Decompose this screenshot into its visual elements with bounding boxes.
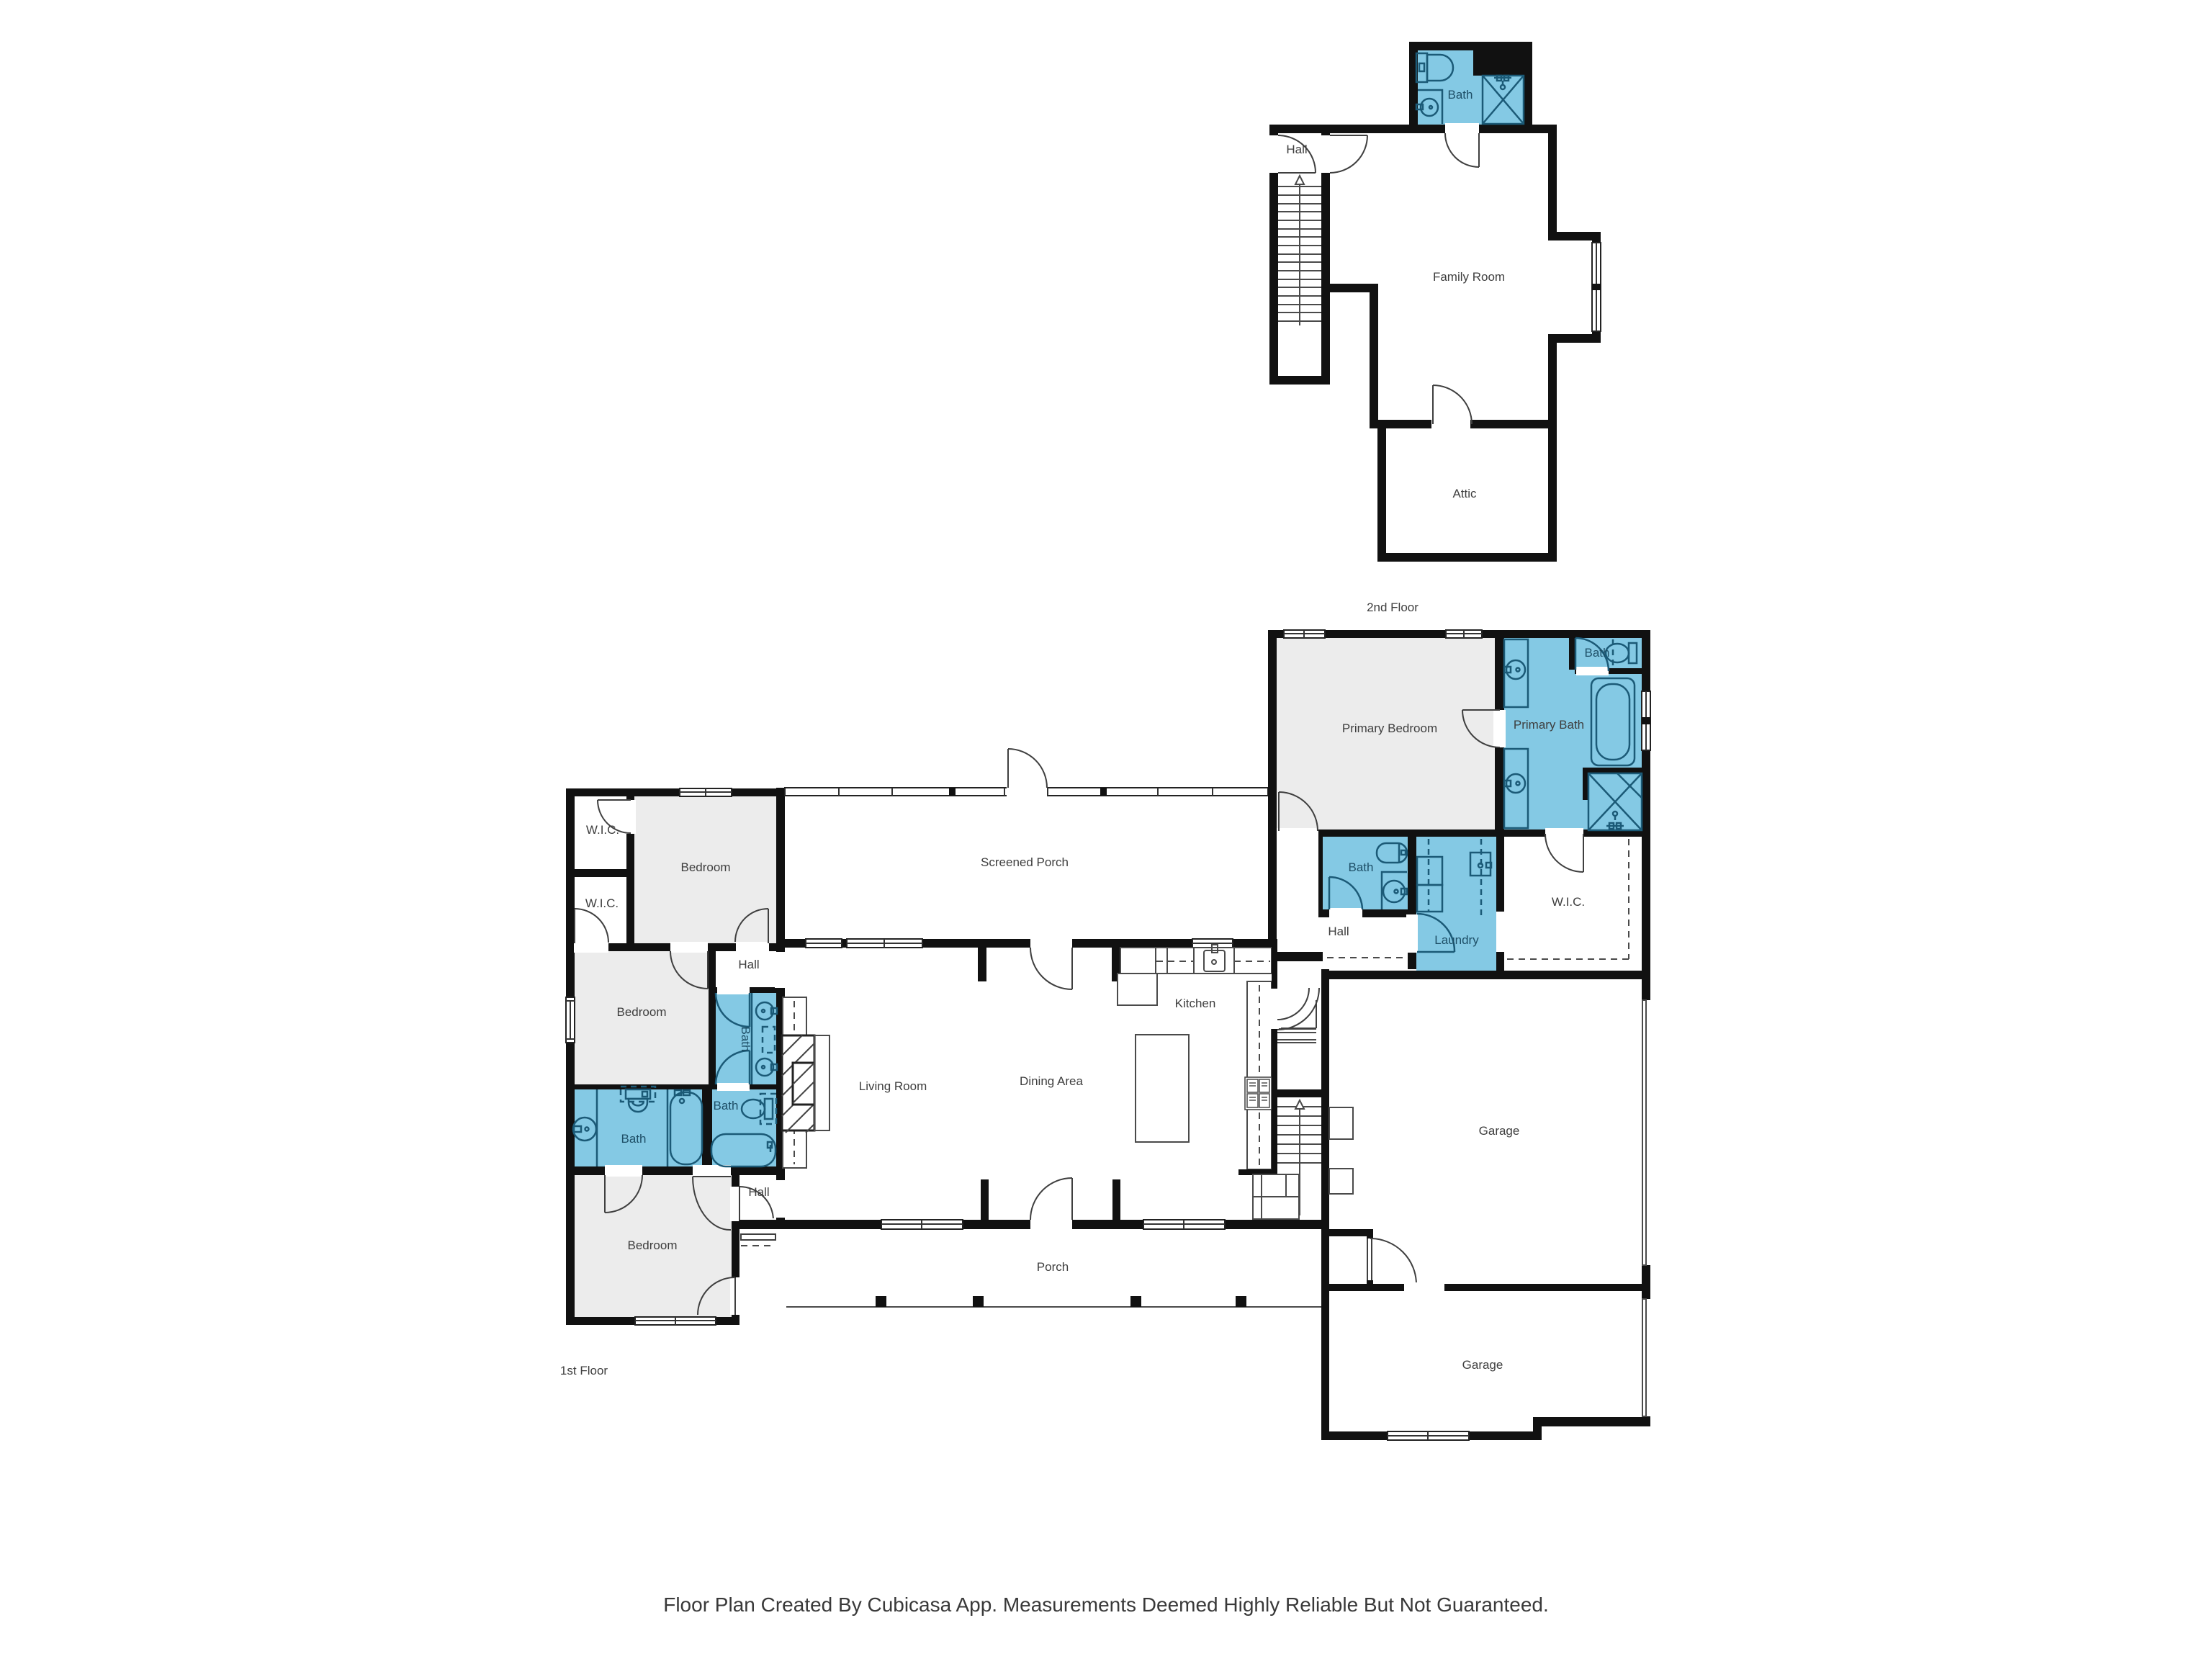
- svg-text:Primary Bedroom: Primary Bedroom: [1342, 721, 1437, 735]
- svg-text:Screened Porch: Screened Porch: [981, 855, 1069, 869]
- svg-text:Kitchen: Kitchen: [1175, 997, 1216, 1010]
- svg-text:Bath: Bath: [1349, 860, 1374, 874]
- svg-text:Dining Area: Dining Area: [1020, 1074, 1083, 1088]
- svg-text:Family Room: Family Room: [1433, 270, 1505, 284]
- svg-text:Garage: Garage: [1479, 1124, 1520, 1138]
- svg-text:Bath: Bath: [1448, 88, 1473, 102]
- svg-text:Laundry: Laundry: [1434, 933, 1479, 947]
- svg-text:W.I.C.: W.I.C.: [585, 896, 619, 910]
- svg-text:W.I.C.: W.I.C.: [1552, 895, 1585, 909]
- svg-text:Primary Bath: Primary Bath: [1514, 718, 1584, 732]
- svg-text:Living Room: Living Room: [859, 1079, 927, 1093]
- svg-text:Bath: Bath: [714, 1099, 739, 1112]
- svg-text:Bath: Bath: [1585, 646, 1610, 660]
- svg-text:1st Floor: 1st Floor: [560, 1364, 608, 1377]
- svg-text:W.I.C.: W.I.C.: [586, 823, 619, 837]
- svg-text:Porch: Porch: [1037, 1260, 1069, 1274]
- svg-text:Bath: Bath: [739, 1027, 752, 1052]
- svg-text:Bedroom: Bedroom: [681, 860, 731, 874]
- svg-text:2nd Floor: 2nd Floor: [1367, 601, 1419, 614]
- svg-text:Garage: Garage: [1462, 1358, 1503, 1372]
- svg-text:Hall: Hall: [1328, 925, 1349, 938]
- svg-text:Hall: Hall: [738, 958, 759, 971]
- svg-text:Bath: Bath: [621, 1132, 647, 1146]
- svg-text:Floor Plan Created By Cubicasa: Floor Plan Created By Cubicasa App. Meas…: [663, 1593, 1549, 1616]
- svg-text:Attic: Attic: [1452, 487, 1477, 500]
- svg-text:Bedroom: Bedroom: [628, 1238, 678, 1252]
- svg-text:Hall: Hall: [748, 1185, 769, 1199]
- svg-text:Hall: Hall: [1286, 143, 1307, 156]
- svg-text:Bedroom: Bedroom: [617, 1005, 667, 1019]
